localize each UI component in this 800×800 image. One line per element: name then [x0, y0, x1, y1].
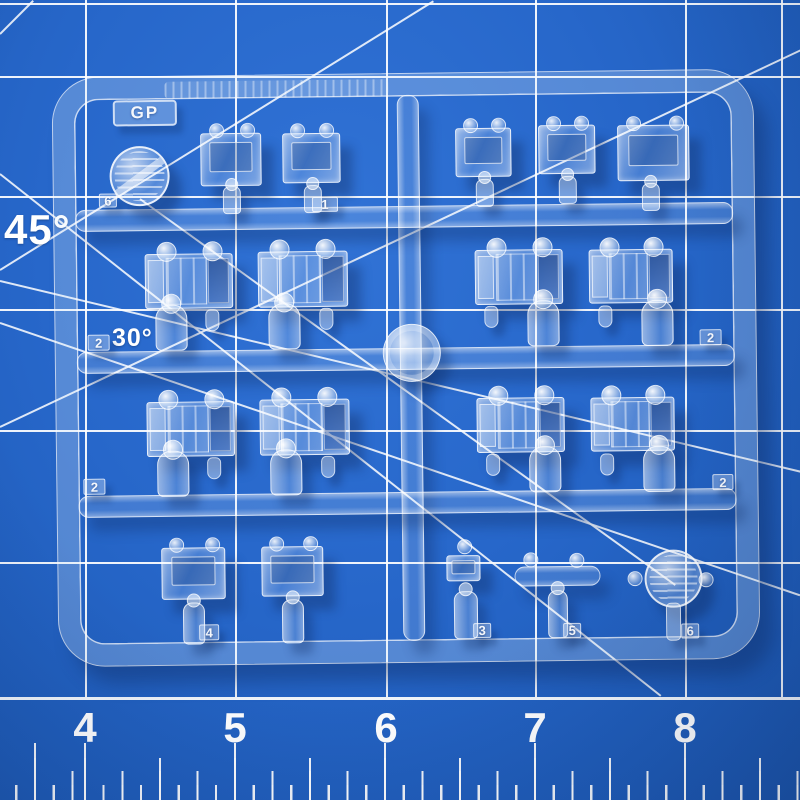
part-tag: 5 — [563, 623, 581, 638]
box-opening — [291, 141, 332, 169]
part-box — [538, 125, 596, 175]
peg — [523, 552, 538, 567]
peg — [457, 539, 472, 554]
box-opening — [547, 133, 587, 161]
part-bell — [641, 300, 674, 346]
part-bracket — [446, 555, 480, 581]
peg — [534, 385, 554, 405]
part-box — [261, 546, 324, 597]
gate — [282, 599, 305, 643]
peg — [202, 241, 222, 261]
box-opening — [271, 555, 315, 583]
box-opening — [628, 134, 679, 166]
hopper-flange — [593, 403, 609, 446]
peg — [546, 116, 561, 131]
part-tag: 1 — [312, 197, 338, 212]
peg — [169, 538, 184, 553]
peg — [574, 116, 589, 131]
part-box — [161, 547, 226, 600]
teardrop — [207, 457, 221, 479]
teardrop — [205, 309, 219, 331]
hopper-panel — [209, 406, 231, 451]
hopper-ribs — [610, 401, 650, 447]
gate — [476, 179, 494, 207]
teardrop — [321, 456, 335, 478]
hopper-flange — [147, 260, 164, 304]
part-hopper — [259, 399, 350, 456]
part-hopper — [258, 251, 349, 308]
part-box — [617, 124, 690, 181]
peg — [601, 385, 621, 405]
part-bell — [155, 305, 188, 351]
peg — [626, 116, 641, 131]
peg — [599, 237, 619, 257]
part-bell — [527, 300, 560, 346]
peg — [158, 390, 178, 410]
part-bell — [529, 446, 562, 492]
peg — [290, 123, 305, 138]
part-bell — [643, 446, 676, 492]
gate — [642, 183, 660, 211]
gate — [223, 186, 241, 214]
part-hopper — [145, 253, 234, 309]
peg — [491, 118, 506, 133]
peg — [319, 123, 334, 138]
teardrop — [600, 453, 614, 475]
part-tag: 2 — [712, 474, 733, 490]
part-tag: 6 — [99, 193, 117, 207]
part-bell — [157, 451, 190, 497]
hopper-ribs — [608, 253, 648, 299]
part-tag: 3 — [473, 623, 491, 638]
teardrop — [598, 305, 612, 327]
lens-ribs — [649, 554, 698, 603]
hopper-ribs — [495, 253, 537, 300]
part-box — [455, 128, 512, 178]
box-opening — [171, 556, 216, 586]
part-box — [282, 133, 341, 184]
part-tag: 2 — [88, 335, 110, 351]
teardrop — [486, 454, 500, 476]
hopper-flange — [479, 404, 496, 448]
sprue-runner: GP — [0, 0, 800, 800]
peg — [204, 389, 224, 409]
hopper-panel — [207, 258, 229, 303]
part-tag: 6 — [681, 623, 699, 638]
hopper-flange — [260, 257, 277, 301]
part-tag: 2 — [700, 329, 722, 345]
part-bell — [268, 303, 301, 349]
peg — [486, 238, 506, 258]
peg — [532, 237, 552, 257]
teardrop — [484, 306, 498, 328]
gate — [666, 603, 681, 641]
box-opening — [464, 136, 503, 164]
teardrop — [319, 308, 333, 330]
hopper-panel — [322, 256, 345, 302]
peg — [271, 387, 291, 407]
peg — [303, 536, 318, 551]
part-tag: 4 — [199, 624, 219, 640]
peg — [627, 571, 642, 586]
hopper-ribs — [497, 401, 539, 448]
peg — [269, 536, 284, 551]
peg — [156, 242, 176, 262]
molded-text-band — [164, 79, 388, 99]
peg — [698, 572, 713, 587]
peg — [645, 385, 665, 405]
photo-canvas: 45° 30° 4 5 6 7 8 GP — [0, 0, 800, 800]
peg — [315, 239, 335, 259]
hopper-flange — [591, 255, 607, 298]
peg — [488, 386, 508, 406]
peg — [209, 123, 224, 138]
part-hopper — [146, 401, 235, 457]
peg — [669, 116, 684, 131]
peg — [240, 123, 255, 138]
gate — [559, 176, 577, 204]
peg — [317, 387, 337, 407]
peg — [643, 237, 663, 257]
peg — [463, 118, 478, 133]
part-tag: 2 — [83, 479, 105, 495]
gp-gate-tag: GP — [113, 100, 177, 127]
peg — [269, 239, 289, 259]
peg — [569, 553, 584, 568]
part-bell — [270, 449, 303, 495]
peg — [205, 537, 220, 552]
hopper-flange — [477, 256, 494, 300]
box-opening — [209, 142, 252, 172]
box-opening — [452, 560, 475, 574]
hopper-panel — [324, 404, 347, 450]
